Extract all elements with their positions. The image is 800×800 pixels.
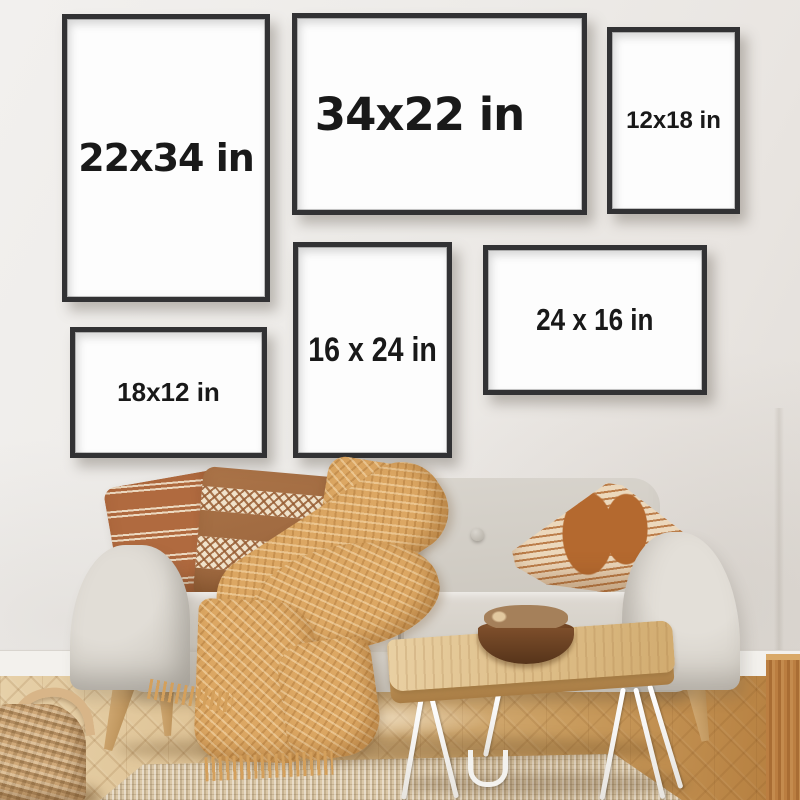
frame-size-label: 18x12 in (117, 377, 220, 408)
poster-frame-22x34: 22x34 in (62, 14, 270, 302)
hairpin-leg-bend (468, 750, 508, 787)
living-room-frame-mockup: 22x34 in 34x22 in 12x18 in 16 x 24 in 24… (0, 0, 800, 800)
poster-frame-34x22: 34x22 in (292, 13, 587, 215)
frame-size-label: 16 x 24 in (308, 331, 437, 370)
poster-frame-24x16: 24 x 16 in (483, 245, 707, 395)
poster-frame-16x24: 16 x 24 in (293, 242, 452, 458)
frame-size-label: 34x22 in (315, 88, 524, 141)
blanket-hanging-flap (274, 634, 384, 764)
frame-size-label: 22x34 in (78, 136, 254, 180)
frame-size-label: 12x18 in (626, 107, 721, 135)
sofa-tufting-button (471, 528, 484, 541)
poster-frame-18x12: 18x12 in (70, 327, 267, 458)
wicker-basket (0, 704, 86, 800)
poster-frame-12x18: 12x18 in (607, 27, 740, 214)
frame-size-label: 24 x 16 in (536, 302, 653, 338)
wall-corner-shadow (774, 408, 784, 654)
wood-cube-stool (766, 654, 800, 800)
table-floor-shadow (400, 772, 690, 796)
